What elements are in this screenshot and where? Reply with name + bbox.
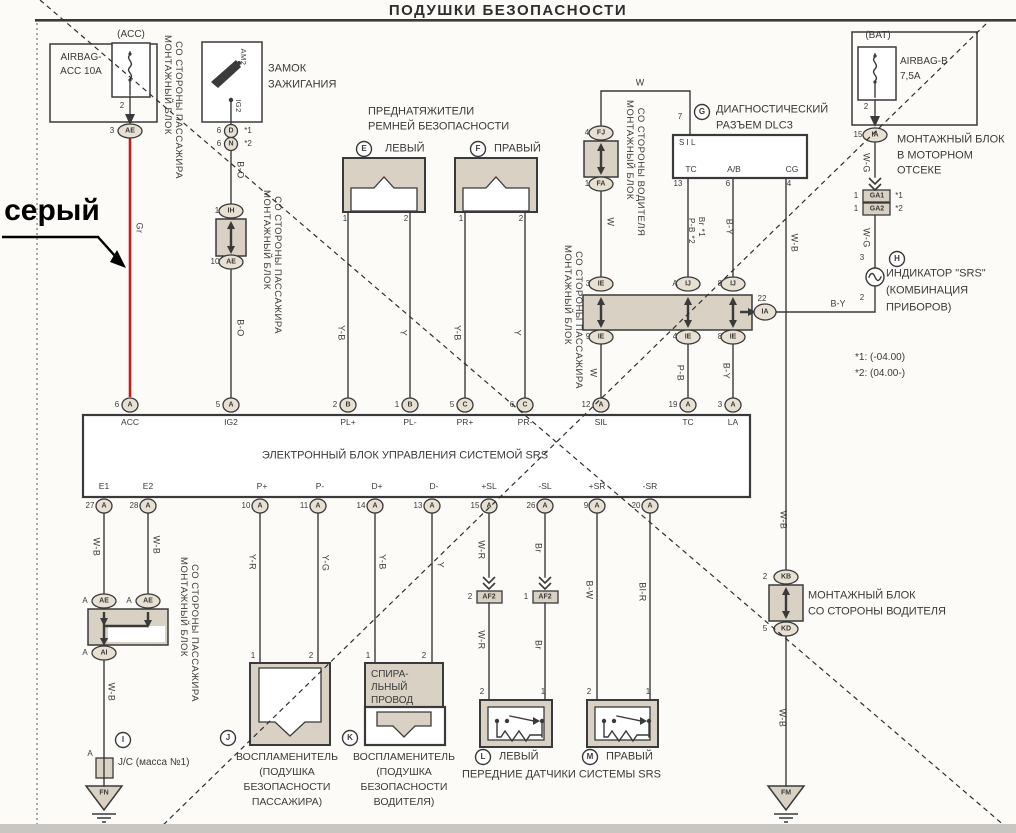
connector-code: IE <box>685 334 692 341</box>
pin-number: 2 <box>763 573 767 581</box>
component-label: ПРАВЫЙ <box>606 752 653 763</box>
terminal-label: LA <box>728 418 738 427</box>
wire-color-label: Y <box>436 562 445 569</box>
terminal-label: SIL <box>595 418 608 427</box>
pin-number: 19 <box>669 401 678 409</box>
pin-number: 2 <box>404 215 408 223</box>
pin-number: 1 <box>541 688 545 696</box>
connector-code: A <box>127 402 132 409</box>
wire-color-label: Y-R <box>248 554 257 570</box>
wire-color-label: B-Y <box>722 363 731 380</box>
component-label: ЗАМОК <box>268 64 306 75</box>
component-label: ПРИБОРОВ) <box>886 303 951 314</box>
note-ref: *2 <box>244 140 252 148</box>
connector-code: C <box>522 402 527 409</box>
connector-code: GA2 <box>870 206 884 213</box>
connector-code: B <box>407 402 412 409</box>
pin-number: 4 <box>585 129 589 137</box>
connector-code: KD <box>781 626 791 633</box>
terminal-label: PR- <box>518 418 533 427</box>
pin-number: 1 <box>585 180 589 188</box>
connector-code: B <box>345 402 350 409</box>
pin-number: 9 <box>586 333 590 341</box>
connector-code: IJ <box>730 281 736 288</box>
pin-number: 8 <box>718 280 722 288</box>
component-label: СО СТОРОНЫ ВОДИТЕЛЯ <box>808 607 946 618</box>
wire-color-label: B-Y <box>830 300 845 309</box>
wire-color-label: W <box>606 218 615 227</box>
pin-number: 3 <box>860 254 864 262</box>
pin-number: 2 <box>422 652 426 660</box>
pin-number: A <box>82 649 87 657</box>
pin-number: 9 <box>584 502 588 510</box>
connector-code: IJ <box>685 281 691 288</box>
connector-code: AF2 <box>538 594 551 601</box>
pin-number: 1 <box>215 207 219 215</box>
fuse-bat-tag: (BAT) <box>865 31 890 41</box>
pin-number: 11 <box>300 502 308 510</box>
terminal-label: IG2 <box>224 418 238 427</box>
pin-number: 2 <box>480 688 484 696</box>
pin-number: 22 <box>758 295 767 303</box>
pin-number: 2 <box>519 215 523 223</box>
connector-code: AF2 <box>482 594 495 601</box>
pin-number: 15 <box>471 502 480 510</box>
pin-number: 5 <box>216 401 220 409</box>
component-label: СПИРА- <box>371 670 409 680</box>
wire-color-label: Y <box>399 330 408 337</box>
connector-code: A <box>228 402 233 409</box>
pin-number: 8 <box>718 333 722 341</box>
pin-number: 14 <box>357 502 366 510</box>
ground-label: FN <box>99 790 108 797</box>
fuse-acc-name: AIRBAG- <box>60 53 101 63</box>
connector-code: FJ <box>597 130 605 137</box>
connector-code: A <box>101 503 106 510</box>
pin-number: A <box>82 597 87 605</box>
pin-number: 6 <box>217 127 221 135</box>
pin-number: 6 <box>115 401 119 409</box>
fuse-acc-tag: (ACC) <box>117 30 145 40</box>
component-label: РАЗЪЕМ DLC3 <box>716 121 793 132</box>
connector-code: AE <box>125 128 135 135</box>
connector-code: A <box>315 503 320 510</box>
pin-number: A <box>126 597 131 605</box>
component-ref: J <box>226 734 230 742</box>
connector-code: C <box>462 402 467 409</box>
diagram-labels: (ACC)AIRBAG-ACC 10A23AEМОНТАЖНЫЙ БЛОКСО … <box>0 0 1016 833</box>
component-label: (ПОДУШКА <box>259 767 315 778</box>
pin-number: 1 <box>646 688 650 696</box>
component-label: ЛЕВЫЙ <box>385 144 425 155</box>
component-label: ВОСПЛАМЕНИТЕЛЬ <box>353 752 455 763</box>
connector-code: IH <box>228 208 235 215</box>
terminal-label: PL- <box>403 418 416 427</box>
component-label: МОНТАЖНЫЙ БЛОК <box>808 591 916 602</box>
pin-number: 1 <box>854 192 858 200</box>
pin-number: 12 <box>582 401 591 409</box>
pin-number: 3 <box>586 280 590 288</box>
component-label: ЛЬНЫЙ <box>371 683 407 693</box>
wire-color-label: B-Y <box>725 219 734 236</box>
ground-label: FM <box>781 790 791 797</box>
terminal-label: D- <box>430 482 439 491</box>
terminal-label: P- <box>316 482 325 491</box>
wire-color-label: W-B <box>152 536 161 555</box>
pin-number: 13 <box>674 180 683 188</box>
relay-block-label: СО СТОРОНЫ ПАССАЖИРА <box>189 564 199 702</box>
pin-number: 4 <box>787 180 791 188</box>
terminal-label: TC <box>685 165 696 174</box>
wire-color-label: B-O <box>236 161 245 179</box>
component-label: ВОСПЛАМЕНИТЕЛЬ <box>236 752 338 763</box>
pin-number: A <box>87 750 92 758</box>
component-ref: E <box>361 145 366 153</box>
note: *2: (04.00-) <box>855 369 905 379</box>
relay-block-label: СО СТОРОНЫ ПАССАЖИРА <box>573 251 583 389</box>
wire-color-label: Y <box>513 330 522 337</box>
connector-code: IE <box>730 334 737 341</box>
terminal-label: -SR <box>643 482 658 491</box>
component-ref: I <box>122 736 124 744</box>
wiring-diagram-page: ПОДУШКИ БЕЗОПАСНОСТИ <box>0 0 1016 833</box>
connector-code: FA <box>597 181 606 188</box>
connector-code: A <box>647 503 652 510</box>
connector-code: A <box>598 402 603 409</box>
terminal-label: AM2 <box>239 49 247 66</box>
relay-block-label: МОНТАЖНЫЙ БЛОК <box>178 557 188 657</box>
pin-number: 1 <box>459 215 463 223</box>
component-label: ПЕРЕДНИЕ ДАТЧИКИ СИСТЕМЫ SRS <box>462 770 661 781</box>
fuse-bat-name: AIRBAG-B <box>900 57 948 67</box>
terminal-label: E2 <box>143 482 153 491</box>
relay-block-label: МОНТАЖНЫЙ БЛОК <box>261 190 271 290</box>
connector-code: AE <box>99 598 109 605</box>
terminal-label: S I L <box>679 139 695 147</box>
pin-number: 1 <box>854 205 858 213</box>
pin-number: 20 <box>632 502 641 510</box>
connector-code: A <box>145 503 150 510</box>
wire-color-label: Y-B <box>337 325 346 341</box>
component-ref: G <box>699 108 705 116</box>
pin-number: 1 <box>524 593 528 601</box>
wire-color-label: P-B *2 <box>687 218 695 244</box>
pin-number: 15 <box>854 131 863 139</box>
pin-number: 10 <box>211 258 220 266</box>
wire-color-label: W-B <box>778 709 787 728</box>
pin-number: 1 <box>343 215 347 223</box>
pin-number: 2 <box>587 688 591 696</box>
relay-block-label: СО СТОРОНЫ ПАССАЖИРА <box>272 196 282 334</box>
wire-color-label: P-B <box>676 365 685 382</box>
component-label: БЕЗОПАСНОСТИ <box>244 782 331 793</box>
fuse-bat-name: 7,5A <box>900 72 921 82</box>
terminal-label: P+ <box>257 482 268 491</box>
pin-number: 6 <box>726 180 730 188</box>
note-ref: *1 <box>895 192 903 200</box>
component-label: (КОМБИНАЦИЯ <box>886 286 968 297</box>
connector-code: A <box>429 503 434 510</box>
terminal-label: ACC <box>121 418 139 427</box>
pin-number: 1 <box>395 401 399 409</box>
component-ref: K <box>347 734 353 742</box>
relay-block-label: МОНТАЖНЫЙ БЛОК <box>162 35 172 135</box>
pin-number: 26 <box>527 502 536 510</box>
connector-code: A <box>486 503 491 510</box>
wire-color-label: Y-G <box>321 555 330 572</box>
component-label: ОТСЕКЕ <box>897 166 941 177</box>
note-ref: *1 <box>244 127 252 135</box>
connector-code: IA <box>872 132 879 139</box>
pin-number: 28 <box>130 502 139 510</box>
pin-number: 6 <box>217 140 221 148</box>
component-ref: F <box>476 145 481 153</box>
component-label: ПРЕДНАТЯЖИТЕЛИ <box>368 107 474 118</box>
terminal-label: D+ <box>371 482 382 491</box>
component-ref: H <box>894 255 900 263</box>
connector-code: AI <box>101 650 108 657</box>
component-ref: L <box>481 753 486 761</box>
component-label: (ПОДУШКА <box>376 767 432 778</box>
relay-block-label: МОНТАЖНЫЙ БЛОК <box>562 245 572 345</box>
pin-number: 2 <box>468 593 472 601</box>
pin-number: A <box>672 280 677 288</box>
fuse-acc-name: ACC 10A <box>60 67 102 77</box>
connector-code: IE <box>598 281 605 288</box>
wire-color-label: B-W <box>585 581 594 600</box>
component-label: J/C (масса №1) <box>118 758 190 768</box>
pin-number: 2 <box>333 401 337 409</box>
terminal-label: E1 <box>99 482 109 491</box>
connector-code: GA1 <box>870 193 884 200</box>
connector-code: AE <box>143 598 153 605</box>
pin-number: 2 <box>860 294 864 302</box>
wire-color-label: Y-B <box>378 554 387 570</box>
pin-number: 3 <box>110 127 114 135</box>
component-label: ПРОВОД <box>371 696 413 706</box>
connector-code: KB <box>781 574 791 581</box>
terminal-label: +SR <box>589 482 606 491</box>
wire-color-label: W <box>589 369 598 378</box>
connector-code: A <box>594 503 599 510</box>
ecu-title: ЭЛЕКТРОННЫЙ БЛОК УПРАВЛЕНИЯ СИСТЕМОЙ SRS <box>262 451 548 462</box>
wire-color-label: Br <box>534 640 543 650</box>
terminal-label: IG2 <box>234 99 242 113</box>
pin-number: 2 <box>120 102 124 110</box>
connector-code: A <box>542 503 547 510</box>
connector-code: N <box>228 141 233 148</box>
component-label: ЛЕВЫЙ <box>499 752 539 763</box>
connector-code: A <box>730 402 735 409</box>
relay-block-label: СО СТОРОНЫ ПАССАЖИРА <box>173 41 183 179</box>
wire-color-label: Y-B <box>453 325 462 341</box>
component-label: БЕЗОПАСНОСТИ <box>361 782 448 793</box>
wire-color-label: W-R <box>477 540 486 559</box>
connector-code: A <box>372 503 377 510</box>
terminal-label: TC <box>682 418 693 427</box>
relay-block-label: СО СТОРОНЫ ВОДИТЕЛЯ <box>635 108 645 237</box>
connector-code: AE <box>226 259 236 266</box>
terminal-label: +SL <box>481 482 496 491</box>
terminal-label: CG <box>786 165 799 174</box>
component-label: ПАССАЖИРА) <box>252 797 322 808</box>
pin-number: 5 <box>763 625 767 633</box>
wire-color-label: W-R <box>477 630 486 649</box>
terminal-label: -SL <box>538 482 551 491</box>
pin-number: 5 <box>450 401 454 409</box>
wire-color-label: W-B <box>779 511 788 530</box>
pin-number: 7 <box>678 113 682 121</box>
wire-color-label: B-O <box>236 319 245 337</box>
component-label: МОНТАЖНЫЙ БЛОК <box>897 135 1005 146</box>
wire-color-label: W-B <box>92 538 101 557</box>
pin-number: 13 <box>414 502 423 510</box>
pin-number: 6 <box>510 401 514 409</box>
pin-number: 1 <box>251 652 255 660</box>
wire-color-label: Br <box>534 543 543 553</box>
pin-number: 27 <box>86 502 95 510</box>
component-label: ВОДИТЕЛЯ) <box>374 797 435 808</box>
component-label: ЗАЖИГАНИЯ <box>268 80 336 91</box>
wire-color-label: Bl-R <box>638 582 647 602</box>
connector-code: D <box>228 128 233 135</box>
wire-color-label: W-G <box>862 228 871 248</box>
component-label: ИНДИКАТОР "SRS" <box>886 269 986 280</box>
component-ref: M <box>587 753 594 761</box>
pin-number: 2 <box>864 103 868 111</box>
note: *1: (-04.00) <box>855 353 905 363</box>
wire-color-label: Gr <box>135 223 144 234</box>
wire-color-label: W <box>636 79 645 88</box>
terminal-label: PR+ <box>457 418 474 427</box>
wire-color-label: W-G <box>862 153 871 173</box>
pin-number: 10 <box>242 502 251 510</box>
pin-number: 1 <box>366 652 370 660</box>
annotation-gray: серый <box>4 196 100 226</box>
pin-number: 3 <box>718 401 722 409</box>
component-label: ДИАГНОСТИЧЕСКИЙ <box>716 105 828 116</box>
wire-color-label: W-B <box>107 683 116 702</box>
component-label: В МОТОРНОМ <box>897 151 973 162</box>
wire-color-label: W-B <box>790 234 799 253</box>
connector-code: A <box>257 503 262 510</box>
terminal-label: A/B <box>727 165 741 174</box>
component-label: РЕМНЕЙ БЕЗОПАСНОСТИ <box>368 122 509 133</box>
component-label: ПРАВЫЙ <box>494 144 541 155</box>
connector-code: A <box>685 402 690 409</box>
pin-number: 4 <box>673 333 677 341</box>
relay-block-label: МОНТАЖНЫЙ БЛОК <box>624 100 634 200</box>
connector-code: IA <box>762 309 769 316</box>
note-ref: *2 <box>895 205 903 213</box>
connector-code: IE <box>598 334 605 341</box>
wire-color-label: Br *1 <box>697 217 705 237</box>
pin-number: 2 <box>309 652 313 660</box>
terminal-label: PL+ <box>340 418 355 427</box>
